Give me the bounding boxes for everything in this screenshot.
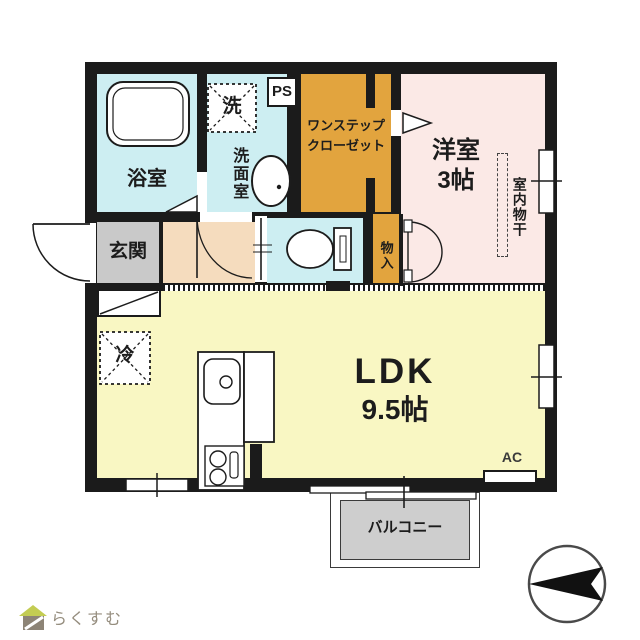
room-closet [301,74,391,212]
balcony-floor [340,500,470,560]
logo-text: らくすむ [51,610,123,629]
wall-kitchen-stub [250,444,262,490]
drying-pole [497,153,508,257]
opening-entrance-door [85,223,96,283]
wall-storage-west [399,214,403,286]
pipe-space-box: PS [267,77,297,107]
room-entrance [97,222,159,283]
ac-unit-box [483,470,537,484]
room-hallway [163,222,255,286]
room-toilet [267,218,363,286]
entrance-door-swing [33,224,90,281]
wall-closet-stub-bottom [366,178,375,212]
opening-bath-door [197,172,207,212]
opening-closet-door [391,110,401,136]
opening-washroom-door [200,212,252,222]
pipe-space-label: PS [272,83,292,100]
compass-icon [529,546,605,622]
room-storage [373,214,401,286]
room-bathroom [97,74,197,212]
wall-threshold-stub [326,281,350,291]
room-western [401,74,545,286]
opening-toilet-door [255,216,267,282]
floor-plan: PS 浴室 洗 洗面室 ワンステップ クローゼット 洋室 3帖 室内物干 玄関 … [0,0,640,640]
logo-house-icon [19,605,47,630]
room-ldk [97,290,545,478]
wall-closet-stub-top [366,74,375,108]
shoe-cabinet [97,289,161,317]
threshold-hatch [163,283,545,291]
